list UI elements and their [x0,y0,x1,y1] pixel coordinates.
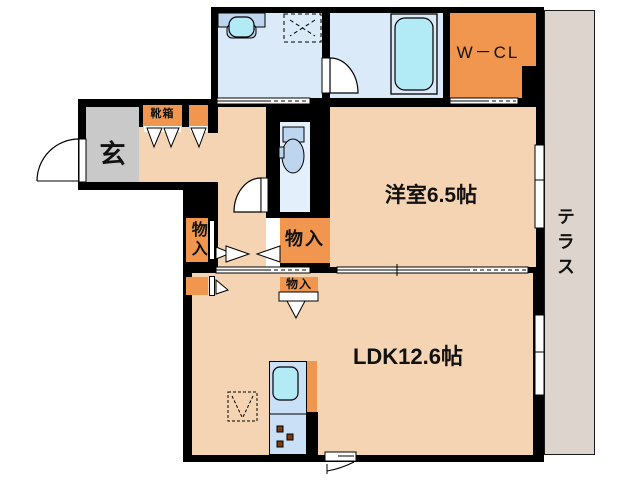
sliding-door-washroom [217,98,310,104]
toilet-door-icon [234,178,268,212]
label-western-room: 洋室6.5帖 [333,185,529,207]
hall-cabinet-door-icon [190,126,207,147]
kitchen-door-icon [325,452,356,474]
sliding-door-hall-ldk [216,267,310,273]
label-storage-tall: 物入 [188,221,205,259]
label-ldk: LDK12.6帖 [310,345,506,368]
label-terrace: テラス [555,207,574,282]
floor-plan: 玄 靴箱 W－CL 洋室6.5帖 LDK12.6帖 テラス 物入 物入 物入 [0,0,638,480]
label-wcl: W－CL [450,44,526,62]
label-storage-small: 物入 [280,278,318,291]
stove-burners-icon [277,426,293,447]
shoebox-doors-icon [144,126,181,147]
washbasin-icon [218,13,265,38]
sink-icon [269,367,307,414]
entrance-door-icon [37,139,86,182]
storage-small-door-icon [279,292,318,318]
refrigerator-area-icon [228,392,257,421]
bathtub-icon [391,14,437,94]
bathroom-door-icon [322,58,358,93]
sliding-door-western-ldk [337,264,528,276]
window-ldk [535,315,544,395]
label-storage-right: 物入 [280,230,330,249]
label-genkan: 玄 [86,141,139,168]
label-shoebox: 靴箱 [143,109,182,121]
toilet-icon [279,127,304,173]
sliding-door-wcl [450,98,518,104]
washing-machine-area-icon [284,14,321,42]
window-western-room [535,145,544,228]
